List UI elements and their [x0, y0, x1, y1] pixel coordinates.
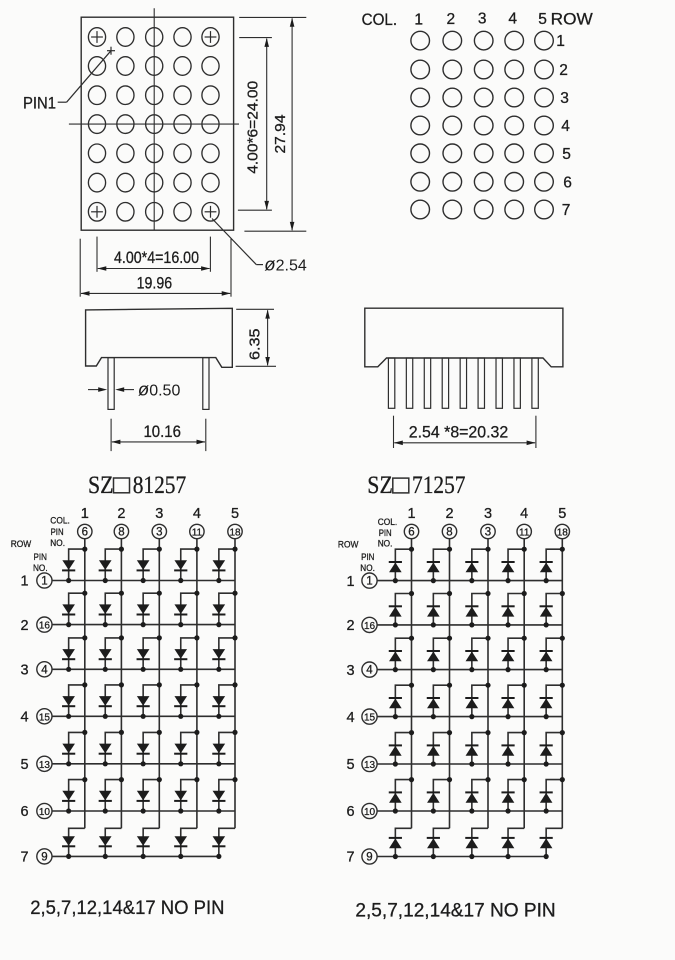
- svg-text:6.35: 6.35: [247, 329, 264, 361]
- svg-text:10: 10: [39, 807, 51, 818]
- svg-text:1: 1: [346, 574, 354, 590]
- svg-text:71257: 71257: [412, 472, 466, 499]
- svg-text:3: 3: [155, 506, 163, 522]
- svg-text:9: 9: [366, 852, 372, 864]
- svg-text:6: 6: [82, 527, 88, 539]
- svg-text:15: 15: [364, 713, 376, 724]
- svg-text:4: 4: [41, 664, 48, 676]
- svg-text:4: 4: [346, 710, 354, 726]
- svg-text:7: 7: [346, 850, 354, 866]
- svg-text:3: 3: [346, 663, 354, 679]
- svg-text:2: 2: [445, 506, 453, 522]
- svg-text:27.94: 27.94: [272, 115, 289, 154]
- svg-text:10: 10: [364, 807, 376, 818]
- svg-text:3: 3: [560, 90, 569, 107]
- svg-text:PIN: PIN: [51, 527, 64, 538]
- svg-text:PIN: PIN: [34, 552, 48, 563]
- svg-text:1: 1: [414, 12, 423, 29]
- svg-text:COL.: COL.: [362, 11, 398, 29]
- svg-text:8: 8: [446, 527, 452, 539]
- svg-text:COL.: COL.: [378, 517, 398, 528]
- svg-text:13: 13: [39, 760, 51, 771]
- svg-text:PIN: PIN: [361, 552, 375, 563]
- svg-text:16: 16: [39, 621, 51, 632]
- svg-text:4: 4: [508, 11, 517, 28]
- svg-text:3: 3: [478, 11, 487, 28]
- svg-text:4: 4: [366, 665, 373, 677]
- svg-text:ø0.50: ø0.50: [138, 378, 181, 399]
- svg-text:5: 5: [20, 757, 28, 773]
- svg-text:5: 5: [558, 506, 566, 522]
- svg-text:18: 18: [557, 528, 569, 539]
- svg-text:15: 15: [39, 712, 51, 723]
- svg-text:2,5,7,12,14&17 NO PIN: 2,5,7,12,14&17 NO PIN: [355, 901, 555, 922]
- svg-text:COL.: COL.: [50, 516, 70, 527]
- svg-text:NO.: NO.: [33, 563, 48, 574]
- svg-text:PIN: PIN: [379, 528, 392, 539]
- svg-text:1: 1: [407, 506, 415, 522]
- svg-text:2.54 *8=20.32: 2.54 *8=20.32: [409, 423, 508, 441]
- svg-text:1: 1: [81, 506, 89, 522]
- svg-text:5: 5: [231, 506, 239, 522]
- svg-text:6: 6: [408, 527, 414, 539]
- svg-text:ROW: ROW: [11, 539, 32, 550]
- svg-text:SZ: SZ: [88, 472, 114, 499]
- svg-text:2: 2: [559, 62, 568, 79]
- svg-text:1: 1: [20, 574, 28, 590]
- svg-text:6: 6: [346, 804, 354, 820]
- svg-text:6: 6: [563, 174, 572, 191]
- svg-text:NO.: NO.: [378, 539, 393, 550]
- svg-text:SZ: SZ: [367, 472, 393, 499]
- svg-text:NO.: NO.: [360, 563, 375, 574]
- svg-text:ø2.54: ø2.54: [264, 254, 307, 275]
- svg-text:9: 9: [41, 851, 47, 863]
- svg-text:2: 2: [446, 11, 455, 28]
- svg-text:7: 7: [562, 202, 571, 219]
- svg-text:1: 1: [41, 576, 47, 588]
- svg-text:2: 2: [20, 618, 28, 634]
- svg-text:4: 4: [20, 710, 28, 726]
- svg-text:3: 3: [484, 506, 492, 522]
- svg-text:PIN1: PIN1: [23, 95, 56, 113]
- svg-text:10.16: 10.16: [143, 423, 181, 441]
- svg-text:ROW: ROW: [338, 539, 359, 550]
- svg-text:81257: 81257: [133, 472, 187, 499]
- svg-text:1: 1: [366, 576, 372, 588]
- svg-text:ROW: ROW: [551, 11, 593, 29]
- svg-text:2,5,7,12,14&17 NO PIN: 2,5,7,12,14&17 NO PIN: [30, 898, 224, 919]
- svg-text:3: 3: [485, 527, 491, 539]
- svg-text:5: 5: [562, 146, 571, 163]
- svg-text:13: 13: [364, 760, 376, 771]
- svg-text:11: 11: [192, 528, 203, 539]
- svg-text:11: 11: [519, 528, 530, 539]
- svg-text:2: 2: [346, 618, 354, 634]
- svg-text:4: 4: [520, 506, 528, 522]
- svg-text:8: 8: [118, 527, 124, 539]
- svg-text:4.00*6=24.00: 4.00*6=24.00: [245, 81, 262, 174]
- svg-text:5: 5: [346, 757, 354, 773]
- svg-text:3: 3: [20, 663, 28, 679]
- svg-text:3: 3: [156, 527, 162, 539]
- svg-text:4.00*4=16.00: 4.00*4=16.00: [114, 249, 199, 267]
- svg-text:19.96: 19.96: [137, 274, 173, 292]
- svg-text:6: 6: [20, 804, 28, 820]
- svg-text:16: 16: [364, 621, 376, 632]
- svg-text:1: 1: [556, 33, 565, 50]
- svg-text:4: 4: [561, 118, 570, 135]
- svg-text:NO.: NO.: [50, 538, 65, 549]
- svg-text:5: 5: [538, 11, 547, 28]
- svg-text:7: 7: [20, 850, 28, 866]
- svg-text:18: 18: [229, 528, 241, 539]
- svg-text:4: 4: [193, 506, 201, 522]
- svg-text:2: 2: [117, 506, 125, 522]
